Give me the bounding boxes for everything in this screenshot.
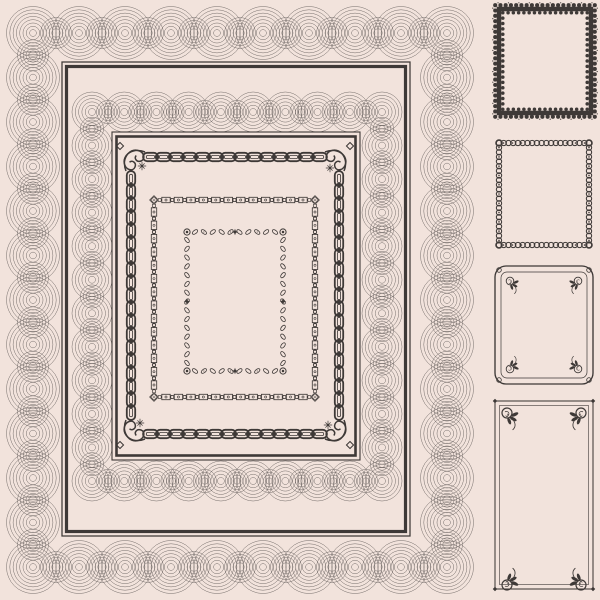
frame-thumbnail-rose-corners-square[interactable] (490, 396, 598, 600)
frame-thumbnail-bead-chain[interactable] (490, 134, 598, 254)
rose-corner-rounded-frame-art (490, 261, 598, 389)
certificate-template-preview[interactable] (0, 0, 480, 600)
rose-corner-square-frame-art (490, 396, 598, 600)
bead-chain-frame-art (490, 134, 598, 254)
design-canvas (0, 0, 600, 600)
certificate-guilloche-artwork (0, 0, 480, 600)
frame-thumbnail-scalloped-lace[interactable] (492, 2, 598, 120)
frame-thumbnail-rose-corners-rounded[interactable] (490, 261, 598, 389)
scalloped-lace-frame-art (492, 2, 598, 120)
